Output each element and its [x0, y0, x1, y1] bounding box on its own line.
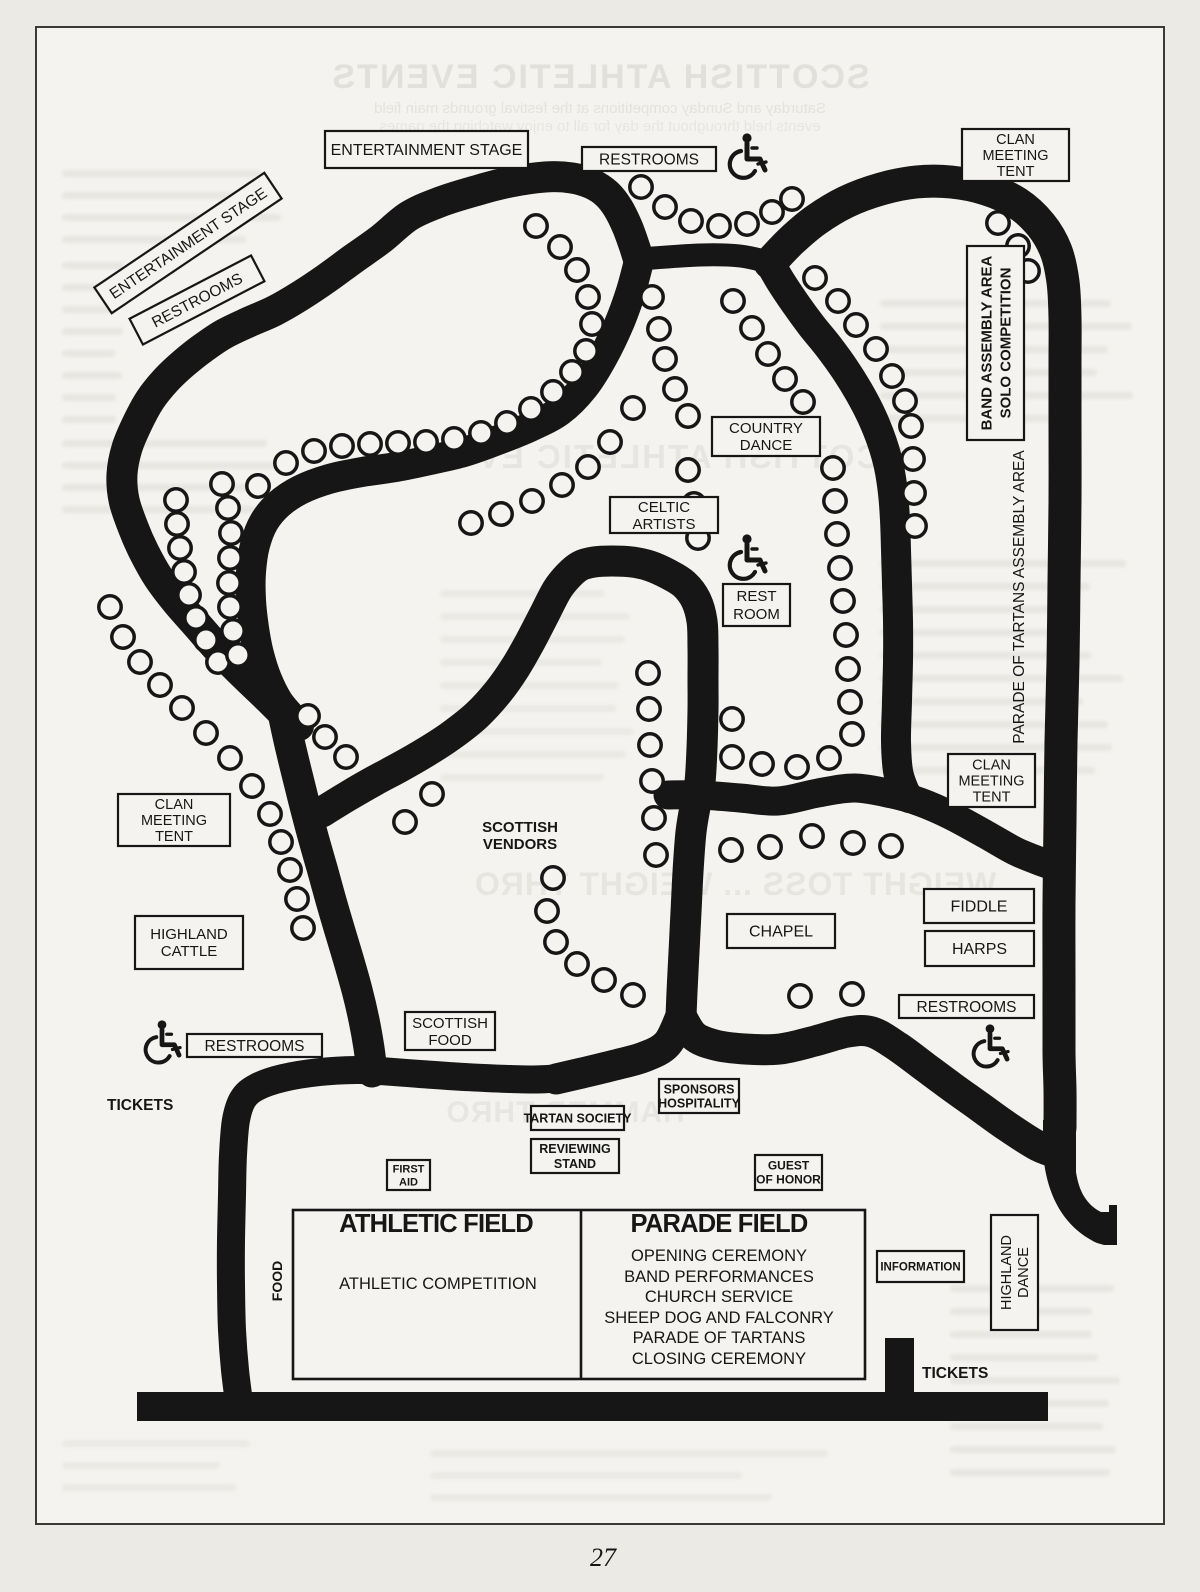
svg-text:DANCE: DANCE: [1016, 1247, 1032, 1298]
svg-text:Saturday and Sunday competitio: Saturday and Sunday competitions at the …: [374, 100, 826, 117]
svg-text:ATHLETIC COMPETITION: ATHLETIC COMPETITION: [339, 1275, 537, 1293]
svg-text:HOSPITALITY: HOSPITALITY: [658, 1096, 740, 1110]
svg-text:SPONSORS: SPONSORS: [664, 1082, 735, 1096]
svg-text:ENTERTAINMENT STAGE: ENTERTAINMENT STAGE: [331, 142, 523, 159]
svg-text:BAND PERFORMANCES: BAND PERFORMANCES: [624, 1268, 814, 1286]
svg-text:BAND ASSEMBLY AREA: BAND ASSEMBLY AREA: [978, 255, 995, 430]
svg-text:PARADE OF TARTANS ASSEMBLY ARE: PARADE OF TARTANS ASSEMBLY AREA: [1011, 450, 1028, 744]
svg-text:ARTISTS: ARTISTS: [632, 516, 695, 533]
svg-text:CELTIC: CELTIC: [638, 499, 690, 516]
svg-text:RESTROOMS: RESTROOMS: [205, 1038, 305, 1055]
svg-text:CLAN: CLAN: [155, 797, 194, 813]
svg-text:REVIEWING: REVIEWING: [539, 1142, 611, 1156]
svg-text:TENT: TENT: [155, 829, 193, 845]
svg-text:VENDORS: VENDORS: [483, 836, 557, 853]
svg-text:CHURCH SERVICE: CHURCH SERVICE: [645, 1288, 793, 1306]
svg-text:FOOD: FOOD: [428, 1032, 471, 1049]
svg-text:ATHLETIC FIELD: ATHLETIC FIELD: [339, 1210, 533, 1238]
svg-text:SOLO COMPETITION: SOLO COMPETITION: [997, 268, 1014, 419]
svg-text:TICKETS: TICKETS: [922, 1365, 988, 1382]
svg-text:ROOM: ROOM: [733, 606, 780, 623]
svg-text:MEETING: MEETING: [958, 774, 1024, 790]
svg-text:FIRST: FIRST: [393, 1163, 425, 1175]
svg-text:REST: REST: [736, 588, 776, 605]
svg-text:DANCE: DANCE: [740, 437, 793, 454]
svg-text:MEETING: MEETING: [982, 148, 1048, 164]
svg-text:CLAN: CLAN: [996, 132, 1035, 148]
svg-text:RESTROOMS: RESTROOMS: [599, 151, 699, 168]
svg-text:TENT: TENT: [973, 790, 1011, 806]
svg-text:FIDDLE: FIDDLE: [951, 899, 1008, 916]
svg-text:OF HONOR: OF HONOR: [756, 1173, 821, 1187]
svg-text:RESTROOMS: RESTROOMS: [917, 999, 1017, 1016]
svg-text:HIGHLAND: HIGHLAND: [999, 1235, 1015, 1310]
svg-text:SCOTTISH ATHLETIC EVENTS: SCOTTISH ATHLETIC EVENTS: [330, 58, 869, 96]
svg-text:TENT: TENT: [997, 164, 1035, 180]
svg-text:PARADE FIELD: PARADE FIELD: [631, 1210, 808, 1238]
svg-text:INFORMATION: INFORMATION: [880, 1262, 960, 1274]
svg-text:AID: AID: [399, 1176, 418, 1188]
svg-text:HARPS: HARPS: [952, 941, 1007, 958]
svg-text:27: 27: [590, 1543, 617, 1572]
svg-text:SHEEP DOG AND FALCONRY: SHEEP DOG AND FALCONRY: [604, 1309, 834, 1327]
svg-text:TARTAN SOCIETY: TARTAN SOCIETY: [524, 1111, 633, 1125]
svg-text:GUEST: GUEST: [768, 1159, 810, 1173]
svg-text:OPENING CEREMONY: OPENING CEREMONY: [631, 1247, 807, 1265]
svg-text:SCOTTISH: SCOTTISH: [412, 1015, 488, 1032]
svg-text:CLAN: CLAN: [972, 758, 1011, 774]
svg-text:MEETING: MEETING: [141, 813, 207, 829]
svg-text:PARADE OF TARTANS: PARADE OF TARTANS: [633, 1329, 806, 1347]
svg-text:SCOTTISH: SCOTTISH: [482, 819, 558, 836]
svg-text:TICKETS: TICKETS: [107, 1097, 173, 1114]
svg-text:COUNTRY: COUNTRY: [729, 420, 803, 437]
svg-text:CATTLE: CATTLE: [161, 943, 217, 960]
svg-text:FOOD: FOOD: [269, 1261, 285, 1301]
svg-text:CHAPEL: CHAPEL: [749, 924, 813, 941]
svg-text:STAND: STAND: [554, 1157, 596, 1171]
svg-text:HIGHLAND: HIGHLAND: [150, 926, 228, 943]
svg-text:CLOSING CEREMONY: CLOSING CEREMONY: [632, 1350, 806, 1368]
